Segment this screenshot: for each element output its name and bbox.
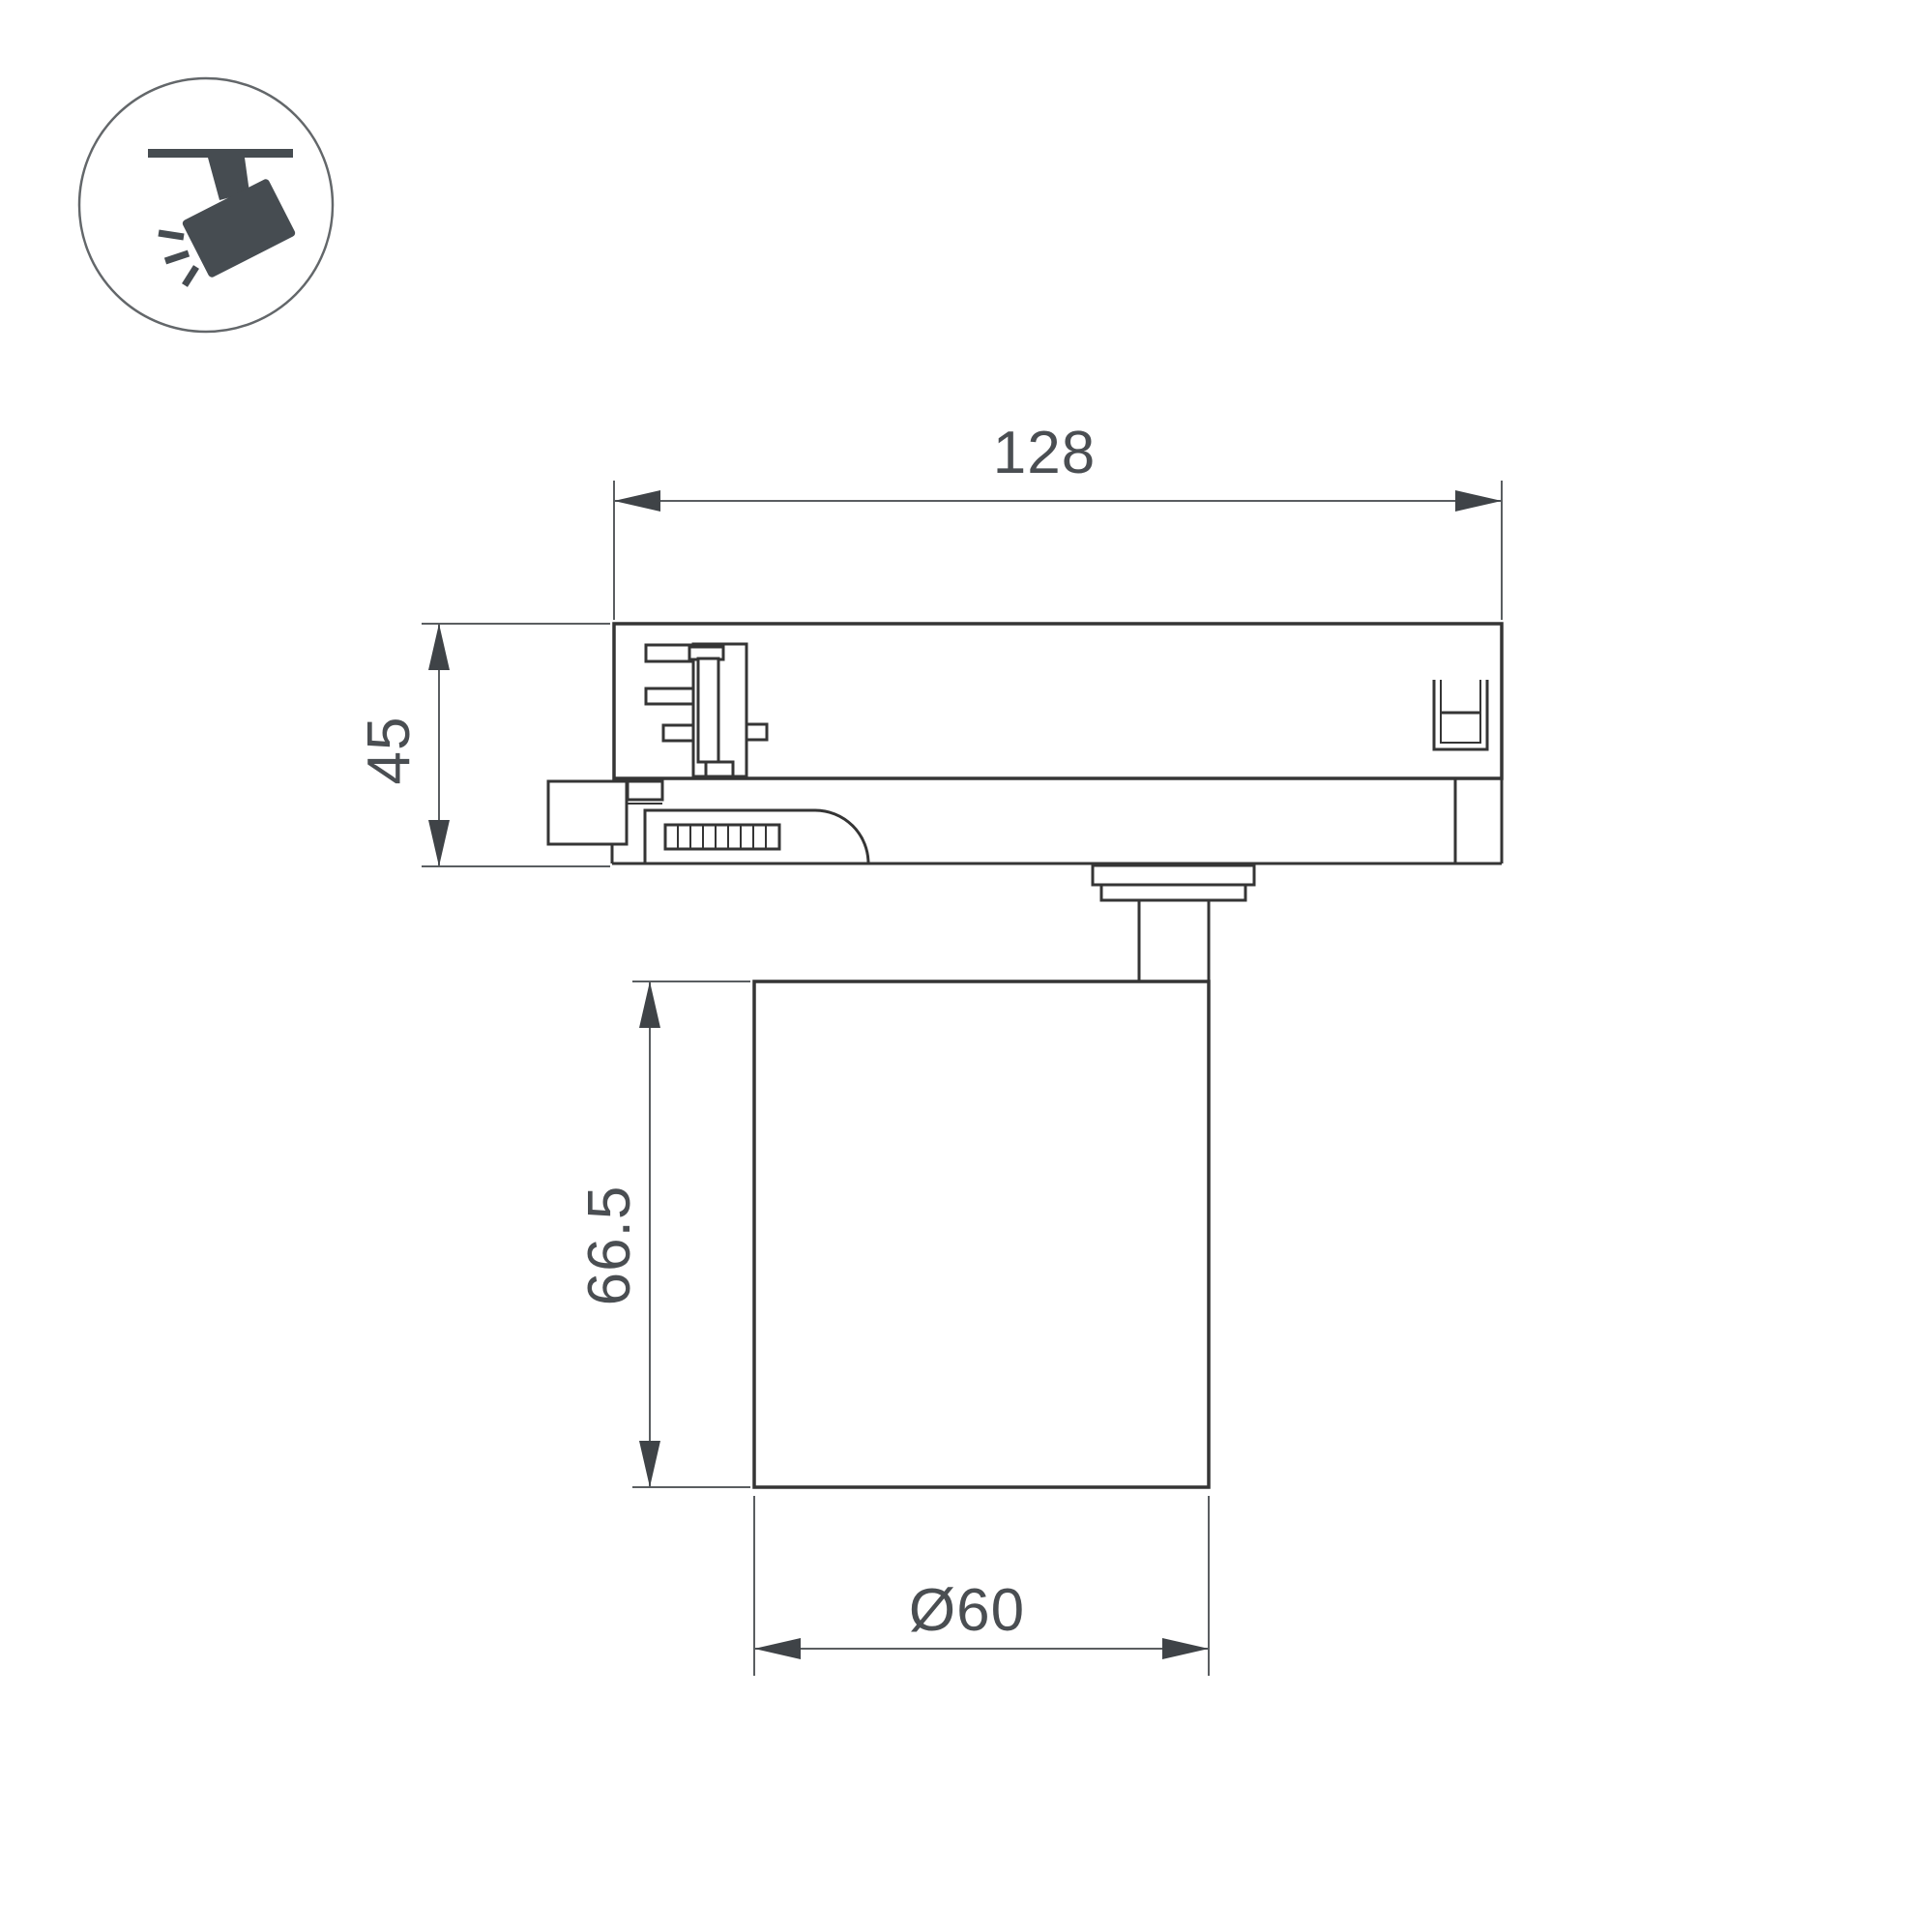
contact-foot xyxy=(706,762,733,776)
swivel-flange-lower xyxy=(1101,885,1245,900)
adapter-lower-housing xyxy=(548,778,1502,864)
contact-post xyxy=(698,659,718,762)
icon-track-bar xyxy=(148,149,293,158)
swivel-stem xyxy=(1139,900,1209,981)
clamp-block xyxy=(548,781,627,844)
dimension-body-diameter: Ø60 xyxy=(754,1496,1209,1676)
swivel-flange-upper xyxy=(1093,865,1254,885)
technical-drawing-page: 128 45 66.5 Ø60 xyxy=(0,0,1932,1932)
ribbed-slider xyxy=(665,825,779,849)
dimension-body-height: 66.5 xyxy=(576,981,750,1487)
dimension-adapter-width: 128 xyxy=(614,420,1502,620)
contact-prong-lower-left xyxy=(663,725,693,741)
dimension-label-128: 128 xyxy=(993,420,1096,486)
dimension-label-diameter-60: Ø60 xyxy=(909,1577,1025,1644)
track-spotlight-icon xyxy=(79,78,333,332)
lock-ledge xyxy=(628,781,662,800)
swivel-joint xyxy=(1093,865,1254,981)
contact-prong-middle xyxy=(646,688,693,704)
dimension-label-66-5: 66.5 xyxy=(576,1186,643,1306)
contact-prong-top xyxy=(646,645,693,661)
lamp-body xyxy=(754,981,1209,1487)
track-light-dimension-drawing: 128 45 66.5 Ø60 xyxy=(0,0,1932,1932)
track-adapter xyxy=(548,624,1502,864)
dimension-label-45: 45 xyxy=(356,717,423,785)
contact-prong-lower-right xyxy=(746,724,767,740)
icon-circle xyxy=(79,78,333,332)
